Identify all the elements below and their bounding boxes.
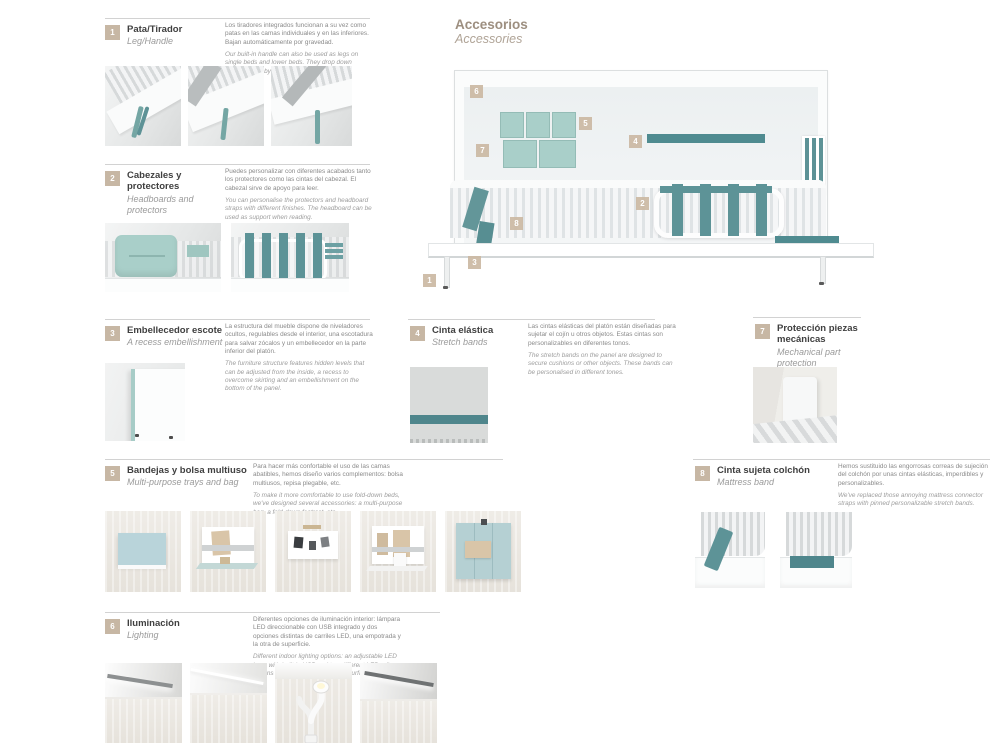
- divider: [753, 317, 861, 318]
- photo-pegboard: [445, 511, 521, 592]
- text-en: You can personalise the protectors and h…: [225, 197, 375, 222]
- teal-box: [187, 245, 209, 257]
- bed-base-platform: [428, 243, 874, 258]
- section-title-es: Bandejas y bolsa multiuso: [127, 465, 247, 476]
- tan-item: [220, 557, 230, 564]
- photo-led-rail-3: [360, 663, 437, 743]
- divider: [105, 459, 503, 460]
- section-number-badge: 7: [755, 324, 770, 339]
- diagram-marker-4: 4: [629, 135, 642, 148]
- section-title: Cinta elástica Stretch bands: [432, 325, 532, 348]
- section-title-es: Cinta elástica: [432, 325, 493, 336]
- page-title: Accesorios: [455, 17, 528, 32]
- photo-led-gooseneck-lamp: [275, 663, 352, 743]
- bed-leg: [820, 256, 826, 284]
- section-title-en: Leg/Handle: [127, 36, 227, 47]
- hanging-bag: [309, 541, 316, 550]
- tan-bar: [303, 525, 321, 529]
- diagram-marker-3: 3: [468, 256, 481, 269]
- photo-mattress-band-flat: [780, 512, 852, 588]
- headboard-seam: [129, 255, 165, 257]
- clip: [481, 519, 487, 525]
- section-text: Hemos sustituido las engorrosas correas …: [838, 463, 990, 509]
- diagram-marker-5: 5: [579, 117, 592, 130]
- leg-foot: [819, 282, 824, 285]
- diagram-marker-1: 1: [423, 274, 436, 287]
- section-text: Las cintas elásticas del platón están di…: [528, 323, 678, 377]
- section-title-en: A recess embellishment: [127, 337, 227, 348]
- text-es: Los tiradores integrados funcionan a su …: [225, 22, 375, 47]
- teal-band: [410, 415, 488, 424]
- protector-strap: [756, 184, 767, 236]
- section-title: Iluminación Lighting: [127, 618, 227, 641]
- divider: [105, 18, 370, 19]
- blue-tray-panel: [118, 533, 166, 565]
- teal-band: [790, 556, 834, 568]
- section-text: Para hacer más confortable el uso de las…: [253, 463, 403, 517]
- section-title-en: Stretch bands: [432, 337, 532, 348]
- teal-strap: [245, 233, 254, 281]
- photo-stretch-band: [410, 367, 488, 443]
- teal-stack: [325, 255, 343, 259]
- divider: [105, 319, 370, 320]
- section-title-es: Cabezales y protectores: [127, 170, 181, 192]
- section-title-en: Mattress band: [717, 477, 827, 488]
- bed-leg: [444, 256, 450, 288]
- divider: [693, 459, 990, 460]
- protector-strap: [728, 184, 739, 236]
- photo-recess-embellishment: [105, 363, 185, 441]
- tan-folder: [465, 541, 491, 558]
- grey-strap: [202, 545, 254, 551]
- section-title: Cabezales y protectores Headboards and p…: [127, 170, 227, 215]
- wall: [105, 699, 182, 743]
- shelf: [366, 566, 428, 571]
- section-number-badge: 4: [410, 326, 425, 341]
- cushion: [539, 140, 576, 168]
- text-es: Para hacer más confortable el uso de las…: [253, 463, 403, 488]
- section-title-en: Headboards and protectors: [127, 194, 227, 216]
- panel-with-teal-edge: [131, 369, 185, 441]
- text-es: Las cintas elásticas del platón están di…: [528, 323, 678, 348]
- section-number-badge: 3: [105, 326, 120, 341]
- teal-leg: [315, 110, 320, 144]
- cushion: [526, 112, 550, 138]
- photo-shelf-items: [360, 511, 436, 592]
- wall: [360, 701, 437, 743]
- section-title: Pata/Tirador Leg/Handle: [127, 24, 227, 47]
- section-title: Bandejas y bolsa multiuso Multi-purpose …: [127, 465, 247, 488]
- text-en: We've replaced those annoying mattress c…: [838, 492, 990, 509]
- section-title-en: Lighting: [127, 630, 227, 641]
- section-title: Cinta sujeta colchón Mattress band: [717, 465, 827, 488]
- tan-folder: [211, 530, 231, 555]
- hanging-bag: [320, 536, 329, 547]
- photo-led-rail-2: [190, 663, 267, 743]
- headboard-cushions: [500, 112, 578, 169]
- section-number-badge: 2: [105, 171, 120, 186]
- photo-leg-handle-3: [271, 66, 352, 146]
- bed-base: [231, 278, 349, 292]
- text-es: La estructura del mueble dispone de nive…: [225, 323, 375, 356]
- text-es: Hemos sustituido las engorrosas correas …: [838, 463, 990, 488]
- section-title-en: Mechanical part protection: [777, 347, 867, 369]
- teal-strap: [296, 233, 305, 281]
- hanging-bag: [294, 537, 304, 549]
- section-title-en: Multi-purpose trays and bag: [127, 477, 247, 488]
- grey-strap: [372, 547, 424, 552]
- diagram-marker-8: 8: [510, 217, 523, 230]
- leveler-foot: [169, 436, 173, 439]
- photo-headboard-straps: [231, 223, 349, 292]
- section-number-badge: 1: [105, 25, 120, 40]
- wall: [190, 695, 267, 743]
- text-en: The stretch bands on the panel are desig…: [528, 352, 678, 377]
- section-number-badge: 8: [695, 466, 710, 481]
- teal-strap: [262, 233, 271, 281]
- cushion: [500, 112, 524, 138]
- tray-edge: [118, 565, 166, 569]
- section-text: Puedes personalizar con diferentes acaba…: [225, 168, 375, 222]
- text-es: Puedes personalizar con diferentes acaba…: [225, 168, 375, 193]
- panel-edge: [410, 439, 488, 443]
- photo-leg-handle-1: [105, 66, 181, 146]
- catalog-page: Accesorios Accessories 1 Pata/Tirador Le…: [0, 0, 1000, 750]
- section-text: La estructura del mueble dispone de nive…: [225, 323, 375, 394]
- photo-leg-handle-2: [188, 66, 264, 146]
- section-title-es: Cinta sujeta colchón: [717, 465, 810, 476]
- text-es: Diferentes opciones de iluminación inter…: [253, 616, 403, 649]
- teal-stack: [325, 243, 343, 247]
- section-title-es: Embellecedor escote: [127, 325, 222, 336]
- text-en: The furniture structure features hidden …: [225, 360, 375, 393]
- photo-mattress-band-loose: [695, 512, 765, 588]
- photo-panel-hooks: [275, 511, 351, 592]
- section-title-es: Protección piezas mecánicas: [777, 323, 858, 345]
- divider: [408, 319, 655, 320]
- panel-stretch-band: [647, 134, 765, 143]
- section-title-es: Pata/Tirador: [127, 24, 182, 35]
- bed-base: [105, 278, 221, 292]
- cushion: [503, 140, 537, 168]
- fold-down-bed-diagram: 6 5 7 4 2 8 3 1: [420, 60, 880, 310]
- page-title-en: Accessories: [455, 32, 522, 46]
- section-title: Protección piezas mecánicas Mechanical p…: [777, 323, 867, 368]
- divider: [105, 612, 440, 613]
- photo-tray-open: [190, 511, 266, 592]
- pegboard-line: [492, 523, 493, 579]
- teal-stack: [325, 249, 343, 253]
- leg-foot: [443, 286, 448, 289]
- section-title-es: Iluminación: [127, 618, 180, 629]
- diagram-marker-2: 2: [636, 197, 649, 210]
- protector-strap: [700, 184, 711, 236]
- teal-strap: [313, 233, 322, 281]
- protector-strap: [672, 184, 683, 236]
- mattress-stripes: [786, 512, 852, 556]
- teal-strap: [279, 233, 288, 281]
- section-title: Embellecedor escote A recess embellishme…: [127, 325, 227, 348]
- section-number-badge: 5: [105, 466, 120, 481]
- divider: [105, 164, 370, 165]
- gooseneck-lamp-illustration: [275, 663, 352, 743]
- photo-mechanical-protection: [753, 367, 837, 443]
- leveler-foot: [135, 434, 139, 437]
- section-number-badge: 6: [105, 619, 120, 634]
- photo-tray-folded: [105, 511, 181, 592]
- photo-led-rail-1: [105, 663, 182, 743]
- photo-headboard-cushion: [105, 223, 221, 292]
- cushion: [552, 112, 576, 138]
- white-box: [394, 553, 406, 566]
- diagram-marker-7: 7: [476, 144, 489, 157]
- diagram-marker-6: 6: [470, 85, 483, 98]
